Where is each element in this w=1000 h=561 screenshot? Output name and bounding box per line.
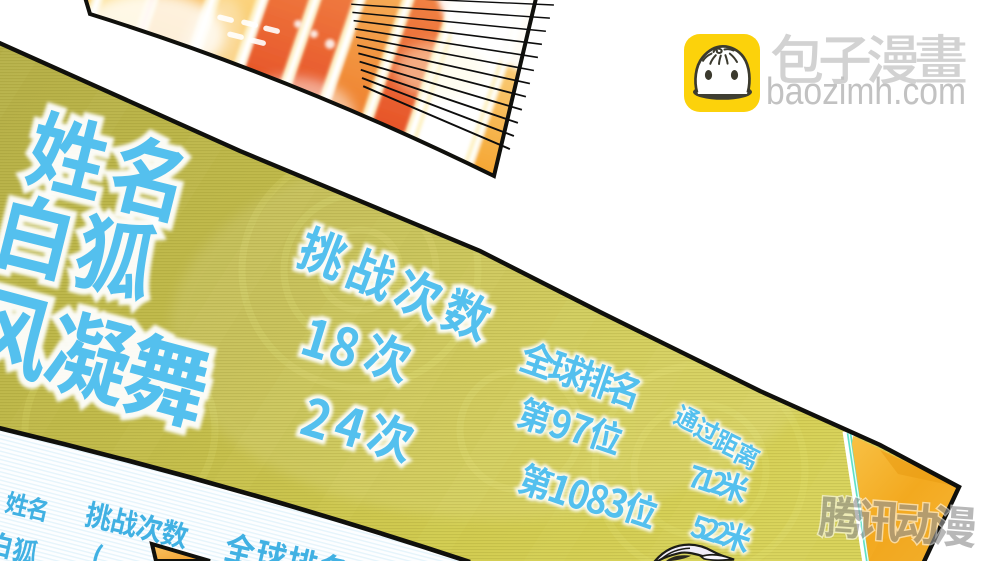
svg-text:baozimh.com: baozimh.com (766, 71, 966, 113)
